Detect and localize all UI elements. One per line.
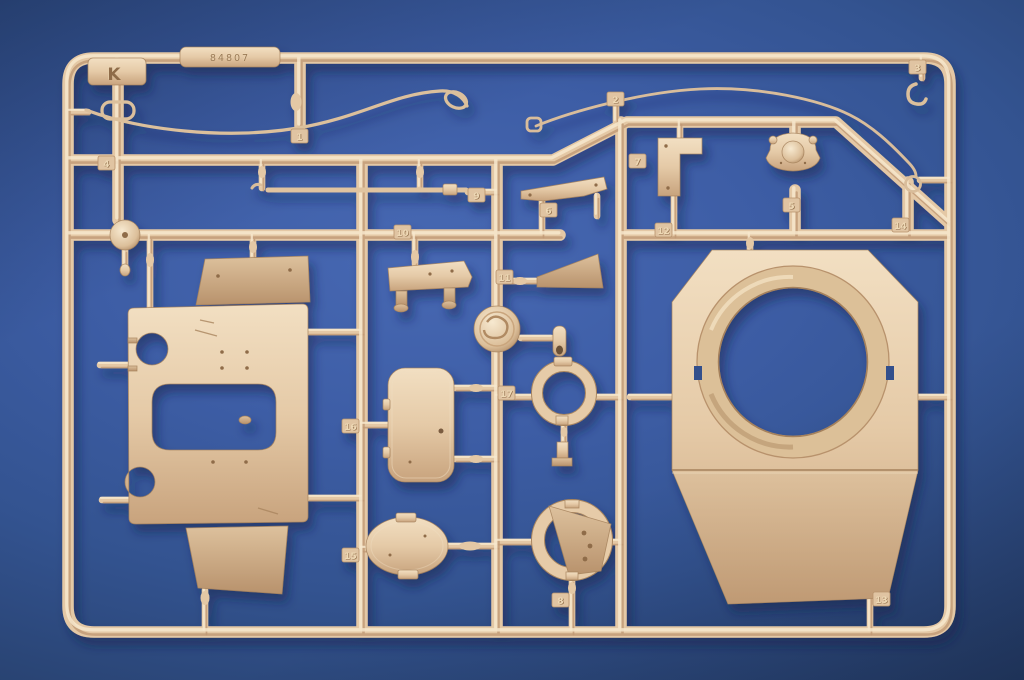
photo-background: K K 84807 84807 112233445566778899101011… — [0, 0, 1024, 680]
svg-text:6: 6 — [545, 207, 551, 217]
svg-text:10: 10 — [396, 229, 409, 239]
part-number-tag: 1414 — [892, 218, 909, 233]
small-bracket-part — [552, 442, 572, 466]
svg-text:7: 7 — [634, 158, 640, 168]
oval-hatch-part — [366, 513, 448, 579]
part-number-tag: 44 — [98, 156, 115, 171]
winged-dome-part — [766, 133, 820, 171]
panel-top-flap — [196, 256, 310, 305]
svg-text:5: 5 — [788, 202, 794, 212]
turret-race-ring — [708, 277, 878, 447]
ring-notch — [886, 366, 894, 380]
part-number-tag: 1111 — [496, 270, 513, 285]
part-number-tag: 33 — [909, 60, 926, 75]
cupola-ring-part — [532, 500, 613, 581]
svg-text:11: 11 — [498, 274, 511, 284]
svg-text:13: 13 — [875, 596, 888, 606]
wedge-plate-part — [537, 254, 603, 288]
embossed-code: 84807 — [210, 53, 250, 64]
part-number-tag: 88 — [552, 593, 569, 608]
svg-text:14: 14 — [894, 222, 907, 232]
svg-text:1: 1 — [296, 133, 302, 143]
svg-text:12: 12 — [657, 227, 670, 237]
part-number-tag: 1313 — [873, 592, 890, 607]
round-hatch-part — [474, 306, 520, 352]
part-number-tag: 1616 — [342, 419, 359, 434]
domed-cap-part — [110, 220, 140, 276]
part-number-tag: 22 — [607, 92, 624, 107]
svg-text:16: 16 — [344, 423, 357, 433]
svg-text:2: 2 — [612, 96, 618, 106]
sprue-photo: K K 84807 84807 112233445566778899101011… — [0, 0, 1024, 680]
tow-cable — [86, 89, 469, 134]
svg-text:4: 4 — [103, 160, 109, 170]
part-number-tag: 1717 — [498, 386, 515, 401]
hook-part — [908, 84, 926, 104]
sprue-letter-plate: K K — [88, 58, 146, 85]
svg-text:9: 9 — [473, 192, 479, 202]
part-number-tag: 11 — [291, 129, 308, 144]
part-number-tag: 1212 — [655, 223, 672, 238]
cylinder-part — [553, 326, 566, 356]
part-number-tag: 66 — [540, 203, 557, 218]
embossed-code-plate: 84807 84807 — [180, 47, 280, 67]
svg-text:8: 8 — [557, 597, 563, 607]
svg-text:3: 3 — [914, 64, 920, 74]
turret-ring-part — [532, 357, 597, 426]
l-bracket-part — [658, 138, 702, 196]
svg-text:15: 15 — [344, 552, 357, 562]
sprue-letter: K — [107, 65, 121, 85]
part-number-tag: 55 — [783, 198, 800, 213]
ring-notch — [694, 366, 702, 380]
part-number-tag: 99 — [468, 188, 485, 203]
svg-text:17: 17 — [500, 390, 513, 400]
part-number-tag: 77 — [629, 154, 646, 169]
part-number-tag: 1515 — [342, 548, 359, 563]
bench-part — [388, 261, 472, 312]
hatch-door-part — [383, 368, 454, 482]
part-number-tag: 1010 — [394, 225, 411, 240]
turret-skirt — [672, 470, 918, 604]
panel-bottom-flap — [186, 526, 288, 594]
turret-roof-panel — [672, 250, 918, 604]
